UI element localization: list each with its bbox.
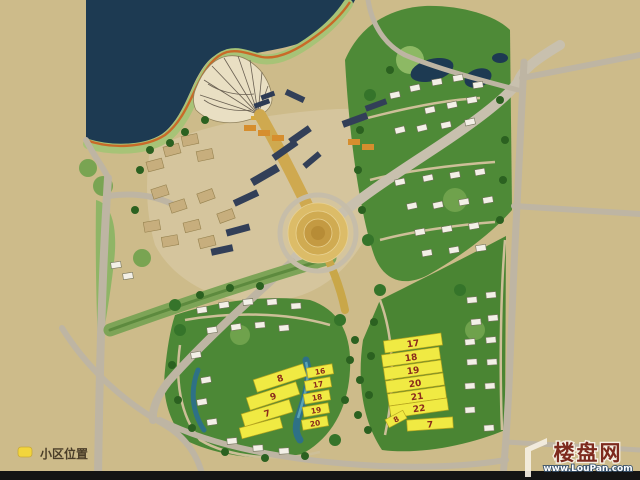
master-plan-screenshot: 8 9 7 16 17 18 19 20 xyxy=(0,0,640,480)
building-number: 18 xyxy=(404,353,418,365)
plan-map-svg: 8 9 7 16 17 18 19 20 xyxy=(0,0,640,480)
building-number: 18 xyxy=(311,392,323,403)
building-number: 17 xyxy=(406,339,420,351)
building-number: 7 xyxy=(427,420,434,430)
watermark-site-url: www.LouPan.com xyxy=(543,464,632,474)
building-number: 20 xyxy=(408,379,422,391)
building-number: 16 xyxy=(314,366,326,377)
building-number: 20 xyxy=(309,418,321,429)
watermark-site-name: 楼盘网 xyxy=(554,441,623,465)
building-number: 17 xyxy=(312,379,324,390)
legend-marker-icon xyxy=(18,447,32,457)
building-number: 19 xyxy=(310,405,322,416)
building-number: 22 xyxy=(412,404,426,416)
legend-label: 小区位置 xyxy=(40,446,88,461)
building-number: 19 xyxy=(406,366,420,378)
